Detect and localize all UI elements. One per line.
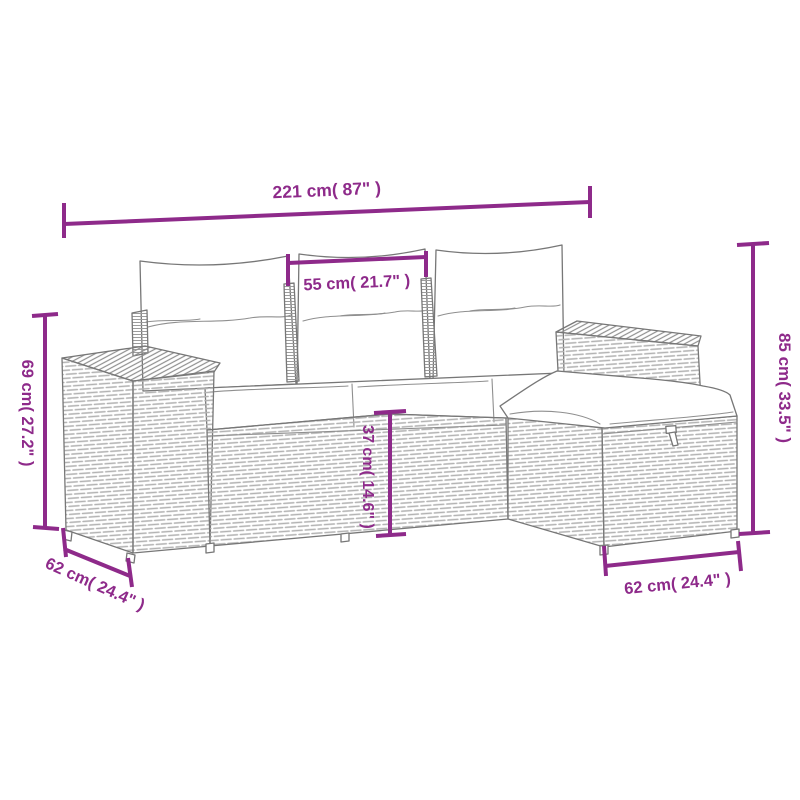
back-pillow-right [433, 245, 564, 382]
sofa-line-art [62, 245, 739, 563]
dim-back-height-label: 85 cm( 33.5" ) [775, 333, 794, 443]
back-pillow-middle [297, 249, 430, 386]
dim-arm-height-label: 69 cm( 27.2" ) [18, 360, 36, 467]
dim-arm-height: 69 cm( 27.2" ) [18, 314, 59, 529]
dim-ottoman-depth-label: 62 cm( 24.4" ) [623, 570, 731, 598]
dimension-diagram: 221 cm( 87" ) 55 cm( 21.7" ) 85 cm( 33.5… [0, 0, 800, 800]
dim-total-width: 221 cm( 87" ) [64, 178, 590, 238]
dim-total-width-label: 221 cm( 87" ) [272, 178, 381, 203]
dim-seat-height-label: 37 cm( 14.6" ) [359, 425, 376, 529]
left-armrest [62, 346, 220, 553]
dim-ottoman-depth: 62 cm( 24.4" ) [604, 541, 741, 598]
diagram-canvas: 221 cm( 87" ) 55 cm( 21.7" ) 85 cm( 33.5… [0, 0, 800, 800]
pillow-strap-1 [284, 283, 299, 382]
dim-back-height: 85 cm( 33.5" ) [737, 243, 794, 534]
ottoman [508, 416, 737, 547]
sofa-front-panel [207, 414, 508, 546]
